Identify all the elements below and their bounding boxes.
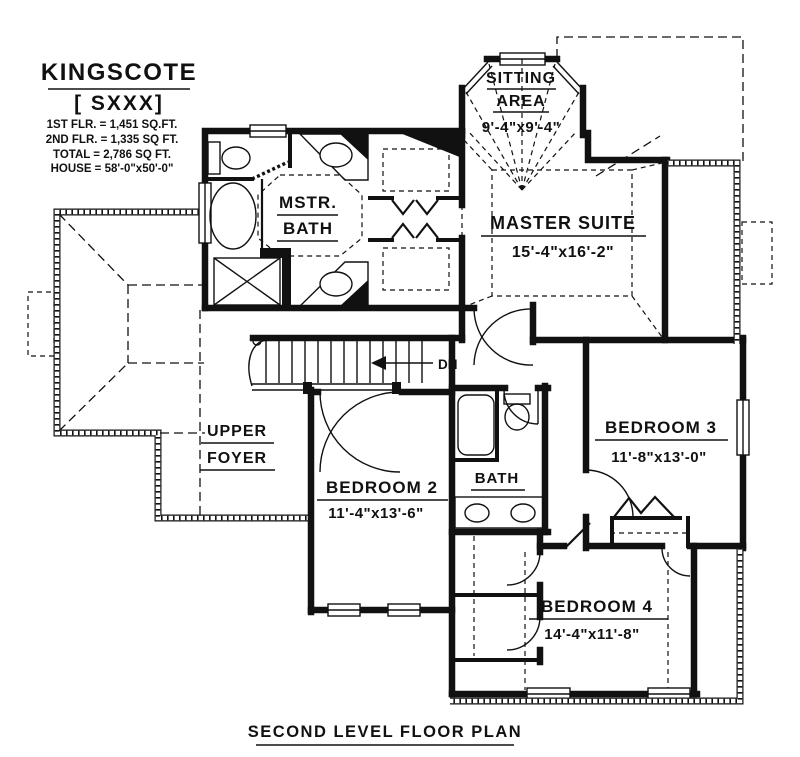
down-arrow-head xyxy=(371,356,386,370)
plan-title: KINGSCOTE xyxy=(41,59,197,86)
title-block: KINGSCOTE [ SXXX] 1ST FLR. = 1,451 SQ.FT… xyxy=(41,59,197,175)
stair-treads xyxy=(266,341,422,383)
rail-newel-curve xyxy=(249,340,266,386)
bedroom-4-room: BEDROOM 4 14'-4"x11'-8" xyxy=(450,532,743,701)
vanity-top xyxy=(300,134,368,180)
roof-hip-line xyxy=(59,363,128,431)
bedroom-2-label: BEDROOM 2 xyxy=(326,478,438,497)
master-bath-label-1: MSTR. xyxy=(279,193,337,212)
toilet xyxy=(222,147,250,169)
toilet-tank xyxy=(504,394,530,404)
wall-fill xyxy=(395,131,462,158)
bedroom-4-dims: 14'-4"x11'-8" xyxy=(544,626,639,643)
bifold-door xyxy=(614,497,674,517)
bedroom-3-dims: 11'-8"x13'-0" xyxy=(611,449,706,466)
bay-window xyxy=(462,62,488,90)
chimney-outline xyxy=(742,222,772,284)
master-bath-room: MSTR. BATH xyxy=(199,125,462,308)
double-door-arc xyxy=(474,309,533,365)
closet-shelf xyxy=(383,248,449,290)
master-suite-room: MASTER SUITE 15'-4"x16'-2" xyxy=(462,133,743,365)
wall-fill xyxy=(282,248,291,308)
bifold-door xyxy=(416,200,438,214)
plan-model: [ SXXX] xyxy=(74,92,164,115)
stat-house-size: HOUSE = 58'-0"x50'-0" xyxy=(51,163,174,175)
door-arc xyxy=(662,548,690,576)
bifold-door xyxy=(392,200,414,214)
closet-door-arc xyxy=(507,617,540,650)
bedroom-3-room: BEDROOM 3 11'-8"x13'-0" xyxy=(566,338,749,548)
closet-door-arc xyxy=(507,552,540,585)
roof-hip-line xyxy=(59,214,128,285)
floor-plan: KINGSCOTE [ SXXX] 1ST FLR. = 1,451 SQ.FT… xyxy=(0,0,800,757)
master-suite-label: MASTER SUITE xyxy=(490,213,636,233)
hall-bath-label: BATH xyxy=(475,470,520,487)
hall-bath-room: BATH xyxy=(452,386,548,532)
floor-plan-sheet: KINGSCOTE [ SXXX] 1ST FLR. = 1,451 SQ.FT… xyxy=(0,0,800,757)
stairs: DN xyxy=(249,337,462,394)
upper-foyer-label-1: UPPER xyxy=(207,423,267,440)
stat-second-floor: 2ND FLR. = 1,335 SQ FT. xyxy=(46,134,179,146)
vanity xyxy=(455,497,543,528)
door-arc xyxy=(586,470,633,517)
bay-window xyxy=(557,62,583,90)
toilet-tank xyxy=(208,142,220,174)
master-suite-dims: 15'-4"x16'-2" xyxy=(512,244,614,261)
pocket-door xyxy=(252,162,288,179)
caption-block: SECOND LEVEL FLOOR PLAN xyxy=(248,723,522,745)
bifold-door xyxy=(392,224,414,238)
double-door-arc xyxy=(474,309,533,365)
bay-window xyxy=(553,66,579,94)
bifold-door xyxy=(416,224,438,238)
sink xyxy=(511,504,535,522)
sitting-area-label-1: SITTING xyxy=(486,70,556,87)
sink xyxy=(465,504,489,522)
sink xyxy=(320,272,352,296)
master-bath-label-2: BATH xyxy=(283,219,333,238)
chimney-outline xyxy=(28,292,54,356)
window xyxy=(737,400,749,455)
double-door-arc xyxy=(320,392,400,472)
bedroom-2-room: BEDROOM 2 11'-4"x13'-6" xyxy=(311,338,452,694)
upper-foyer-label-2: FOYER xyxy=(207,450,267,467)
sitting-area-dims: 9'-4"x9'-4" xyxy=(482,119,561,136)
bedroom-4-label: BEDROOM 4 xyxy=(541,597,653,616)
bedroom-3-label: BEDROOM 3 xyxy=(605,418,717,437)
tray-ceiling xyxy=(492,170,632,296)
closet-shelf xyxy=(383,149,449,191)
sheet-caption: SECOND LEVEL FLOOR PLAN xyxy=(248,723,522,741)
sink xyxy=(320,143,352,167)
stat-total: TOTAL = 2,786 SQ FT. xyxy=(53,149,171,161)
sitting-area-label-2: AREA xyxy=(496,93,545,110)
vanity-bottom xyxy=(300,262,368,306)
bedroom-2-dims: 11'-4"x13'-6" xyxy=(328,505,423,522)
tub xyxy=(458,395,494,455)
master-tub xyxy=(210,183,256,249)
double-door-arc xyxy=(320,392,400,472)
stat-first-floor: 1ST FLR. = 1,451 SQ.FT. xyxy=(47,119,178,131)
